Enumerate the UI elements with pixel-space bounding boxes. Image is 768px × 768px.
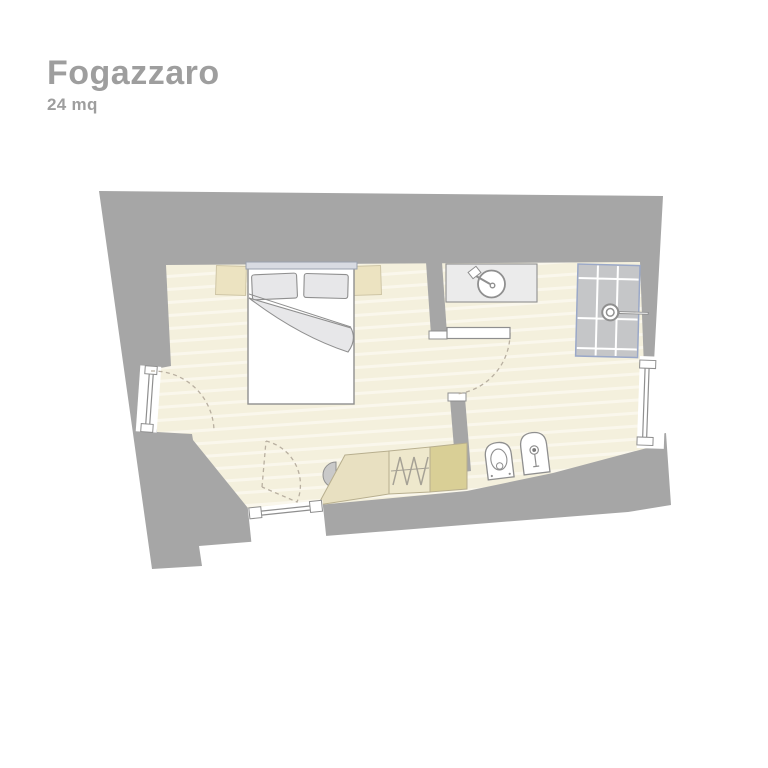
bedside-table-right [352,265,382,295]
bedside-table-left [215,265,246,295]
window-jamb-cap [637,437,653,446]
floor-plan-page: Fogazzaro 24 mq [0,0,768,768]
toilet [484,441,514,480]
door-jamb-cap [141,424,154,433]
window-jamb-cap [309,500,322,512]
wardrobe-end-unit [430,443,467,492]
bedroom-bottom-window [248,500,327,552]
interior-door-leaf [447,328,510,339]
pillow-right [304,273,349,298]
bidet-drain-tick [533,466,539,467]
bidet-body [519,431,550,475]
shower-head [602,304,618,320]
door-jamb-cap [448,393,466,401]
headboard [246,262,357,269]
door-jamb-cap [429,331,447,339]
door-jamb-cap [145,366,158,375]
window-jamb-cap [640,360,656,369]
pillow-left [251,273,297,300]
bathroom-window [637,356,667,449]
bidet [519,431,550,475]
window-jamb-cap [249,507,262,519]
floor-plan-drawing [0,0,768,768]
window-opening [637,356,667,449]
